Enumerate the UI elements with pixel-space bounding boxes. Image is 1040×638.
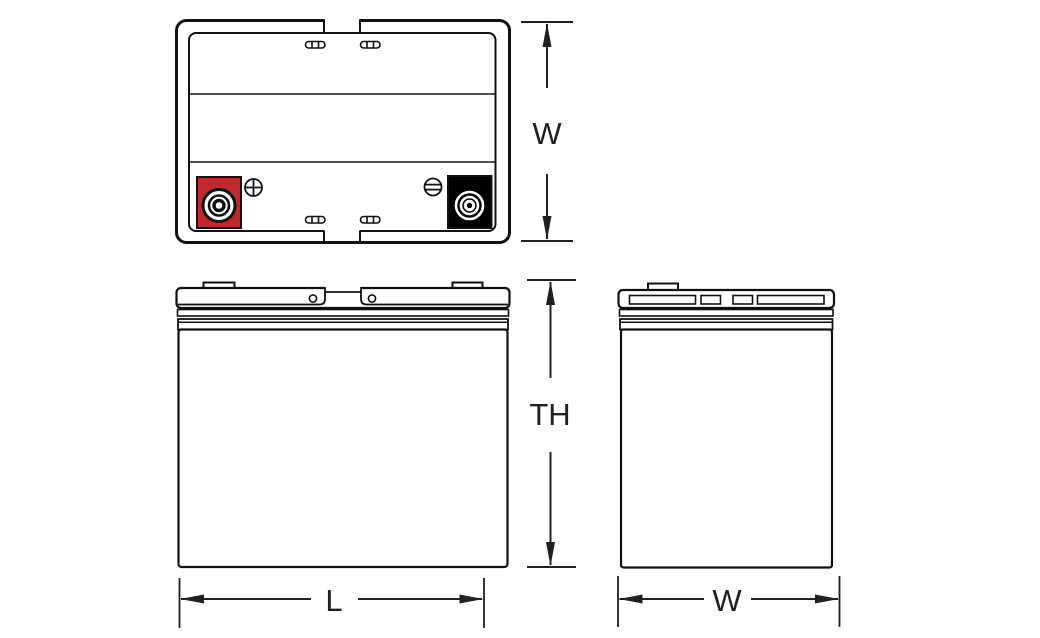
front-seam-band-upper <box>178 310 509 317</box>
dim-arrow-down <box>546 542 555 566</box>
side-view <box>619 284 835 568</box>
side-lid-slot <box>701 296 721 305</box>
top-view <box>177 17 510 243</box>
side-lid-slot <box>758 296 825 305</box>
front-lid-notch-gap <box>326 285 360 290</box>
vent-slot-bottom-right <box>361 217 381 224</box>
dim-arrow-left <box>180 595 204 604</box>
side-case-body <box>621 330 832 568</box>
front-seam-band-lower <box>178 319 508 330</box>
dim-arrow-right <box>815 595 839 604</box>
dim-arrow-up <box>543 23 552 47</box>
top-rim-notch-gap <box>325 17 360 24</box>
dim-arrow-down <box>543 216 552 240</box>
vent-slot-bottom-left <box>306 217 326 224</box>
dimension-w-top: W <box>521 22 573 241</box>
vent-slot-top-right <box>361 42 381 49</box>
negative-terminal <box>448 176 492 228</box>
dim-label-th: TH <box>529 397 570 432</box>
diagram-canvas: W TH L <box>0 0 1040 638</box>
dimension-th: TH <box>527 280 576 567</box>
polarity-plus-icon <box>245 179 262 196</box>
battery-dimension-diagram: W TH L <box>0 0 1040 638</box>
positive-terminal <box>197 177 241 228</box>
front-flap-pin-left <box>309 295 316 302</box>
side-seam-band-lower <box>620 319 833 330</box>
front-flap-pin-right <box>368 295 375 302</box>
polarity-minus-icon <box>425 179 442 196</box>
front-case-body <box>179 330 508 568</box>
side-lid-slot <box>733 296 753 305</box>
dim-label-w-side: W <box>712 583 742 618</box>
side-seam-band-upper <box>620 310 834 317</box>
side-lid-slot <box>630 296 696 305</box>
front-view <box>177 283 510 568</box>
dim-arrow-up <box>546 281 555 305</box>
dim-label-w-top: W <box>532 116 562 151</box>
bottom-rim-notch-gap <box>325 228 360 234</box>
dim-label-l: L <box>325 583 342 618</box>
dimension-l: L <box>180 578 485 628</box>
dimension-w-side: W <box>618 576 840 627</box>
dim-arrow-right <box>460 595 484 604</box>
vent-slot-top-left <box>306 42 326 49</box>
dim-arrow-left <box>619 595 643 604</box>
